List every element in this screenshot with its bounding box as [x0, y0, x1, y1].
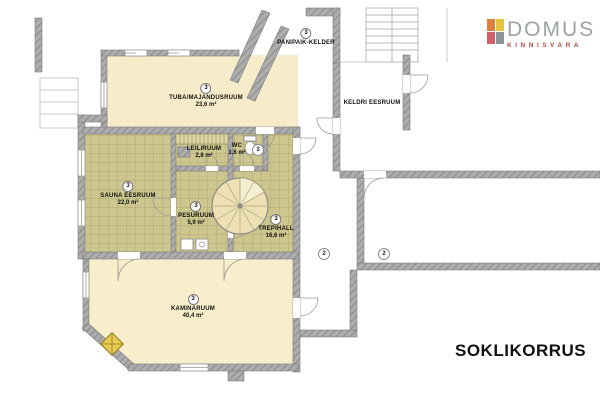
room-area-trepihall: 16,6 m²	[266, 233, 287, 239]
room-name-leiliruum: LEILIRUUM	[187, 146, 221, 152]
wall-complex-right	[293, 127, 300, 372]
gap-tuba-trepihall	[256, 127, 274, 134]
logo-square-orange	[487, 19, 495, 31]
wall-wc-right	[263, 134, 268, 170]
room-name-panipaik: PANIPAIK-KELDER	[277, 40, 334, 46]
floor-title: SOKLIKORRUS	[455, 341, 586, 361]
company-logo: DOMUS KINNISVARA	[487, 19, 595, 49]
door-long-wall	[364, 178, 384, 198]
room-badge-pesuruum: 3	[191, 201, 202, 212]
room-label-trepihall: 3 TREPIHALL 16,6 m²	[258, 214, 293, 239]
gap-sauna-kaminaruum	[118, 252, 140, 259]
wall-left-top-stub	[35, 18, 42, 72]
room-badge-panipaik: 3	[300, 28, 311, 39]
room-name-sauna: SAUNA EESRUUM	[100, 193, 155, 199]
room-area-sauna: 22,0 m²	[118, 200, 139, 206]
room-name-keldri: KELDRI EESRUUM	[344, 100, 401, 106]
exterior-staircase	[366, 8, 418, 62]
lightwell-steps	[40, 90, 78, 114]
logo-name: DOMUS	[507, 19, 595, 41]
logo-square-red	[487, 32, 495, 44]
spiral-stair-pole	[238, 204, 243, 209]
sink-icon	[196, 239, 208, 250]
wall-corridor-bottom	[300, 330, 357, 337]
wall-kaminaruum-bottom	[128, 364, 298, 371]
floor-plan-drawing	[0, 0, 600, 400]
gap-keldri-left	[333, 118, 340, 134]
floor-plan-canvas: 3 TUBA/MAJANDUSRUUM 23,6 m² 3 PANIPAIK-K…	[0, 0, 600, 400]
room-name-tuba: TUBA/MAJANDUSRUUM	[169, 95, 243, 101]
washer-icon	[181, 239, 193, 250]
wall-bottom-right	[357, 263, 600, 270]
gap-trepihall-kaminaruum	[224, 252, 246, 259]
room-area-pesuruum: 5,9 m²	[187, 220, 204, 226]
wall-sauna-divider	[171, 134, 176, 252]
toilet-tank-icon	[244, 136, 256, 141]
wall-corner-left	[78, 115, 107, 122]
room-name-wc: WC	[232, 143, 242, 149]
room-area-tuba: 23,6 m²	[196, 102, 217, 108]
gap-leiliruum	[206, 166, 218, 171]
room-label-sauna: 3 SAUNA EESRUUM 22,0 m²	[100, 181, 155, 206]
room-badge-trepihall: 3	[271, 214, 282, 225]
room-label-tuba: 3 TUBA/MAJANDUSRUUM 23,6 m²	[169, 83, 243, 108]
room-label-pesuruum: 3 PESURUUM 5,9 m²	[178, 201, 214, 226]
wall-right-divider	[357, 178, 364, 263]
room-badge-wc: 3	[252, 144, 264, 156]
wall-corridor-right	[350, 270, 357, 330]
door-keldri-left	[317, 118, 333, 134]
gap-trepihall-corridor	[293, 138, 300, 154]
logo-subtitle: KINNISVARA	[507, 42, 595, 49]
room-area-leiliruum: 2,8 m²	[195, 153, 212, 159]
gap-wc	[240, 166, 254, 171]
room-label-keldri: KELDRI EESRUUM	[344, 100, 401, 106]
door-trepihall-corridor	[300, 138, 316, 154]
wall-outer-left	[78, 115, 85, 259]
area-marker-right: 2	[378, 248, 390, 260]
room-badge-kaminaruum: 3	[188, 294, 199, 305]
logo-square-gray	[496, 32, 504, 44]
gap-sauna	[171, 198, 176, 216]
room-area-wc: 1,6 m²	[228, 150, 245, 156]
room-label-wc: WC 1,6 m²	[228, 143, 245, 156]
wall-keldri-left	[333, 63, 340, 171]
room-label-panipaik: 3 PANIPAIK-KELDER	[277, 28, 334, 46]
room-badge-sauna: 3	[122, 181, 133, 192]
wall-kaminaruum-top	[83, 252, 298, 259]
room-badge-tuba: 3	[200, 83, 211, 94]
logo-square-yellow	[496, 19, 504, 31]
gap-long-wall	[364, 171, 386, 178]
area-marker-left: 2	[318, 248, 330, 260]
room-name-kaminaruum: KAMINARUUM	[171, 306, 215, 312]
room-name-pesuruum: PESURUUM	[178, 213, 214, 219]
room-label-leiliruum: LEILIRUUM 2,8 m²	[187, 146, 221, 159]
room-area-kaminaruum: 40,4 m²	[183, 313, 204, 319]
wall-chimney-stub	[228, 371, 244, 381]
door-keldri-right	[410, 75, 428, 93]
wall-leili-wc-bottom	[176, 166, 268, 171]
gap-keldri-right	[403, 75, 410, 93]
logo-squares-icon	[487, 19, 504, 44]
door-kaminaruum-corridor	[300, 298, 318, 316]
lightwell-outline	[40, 78, 78, 128]
gap-kaminaruum-corridor	[293, 298, 300, 318]
room-label-kaminaruum: 3 KAMINARUUM 40,4 m²	[171, 294, 215, 319]
logo-text: DOMUS KINNISVARA	[507, 19, 595, 49]
room-name-trepihall: TREPIHALL	[258, 226, 293, 232]
